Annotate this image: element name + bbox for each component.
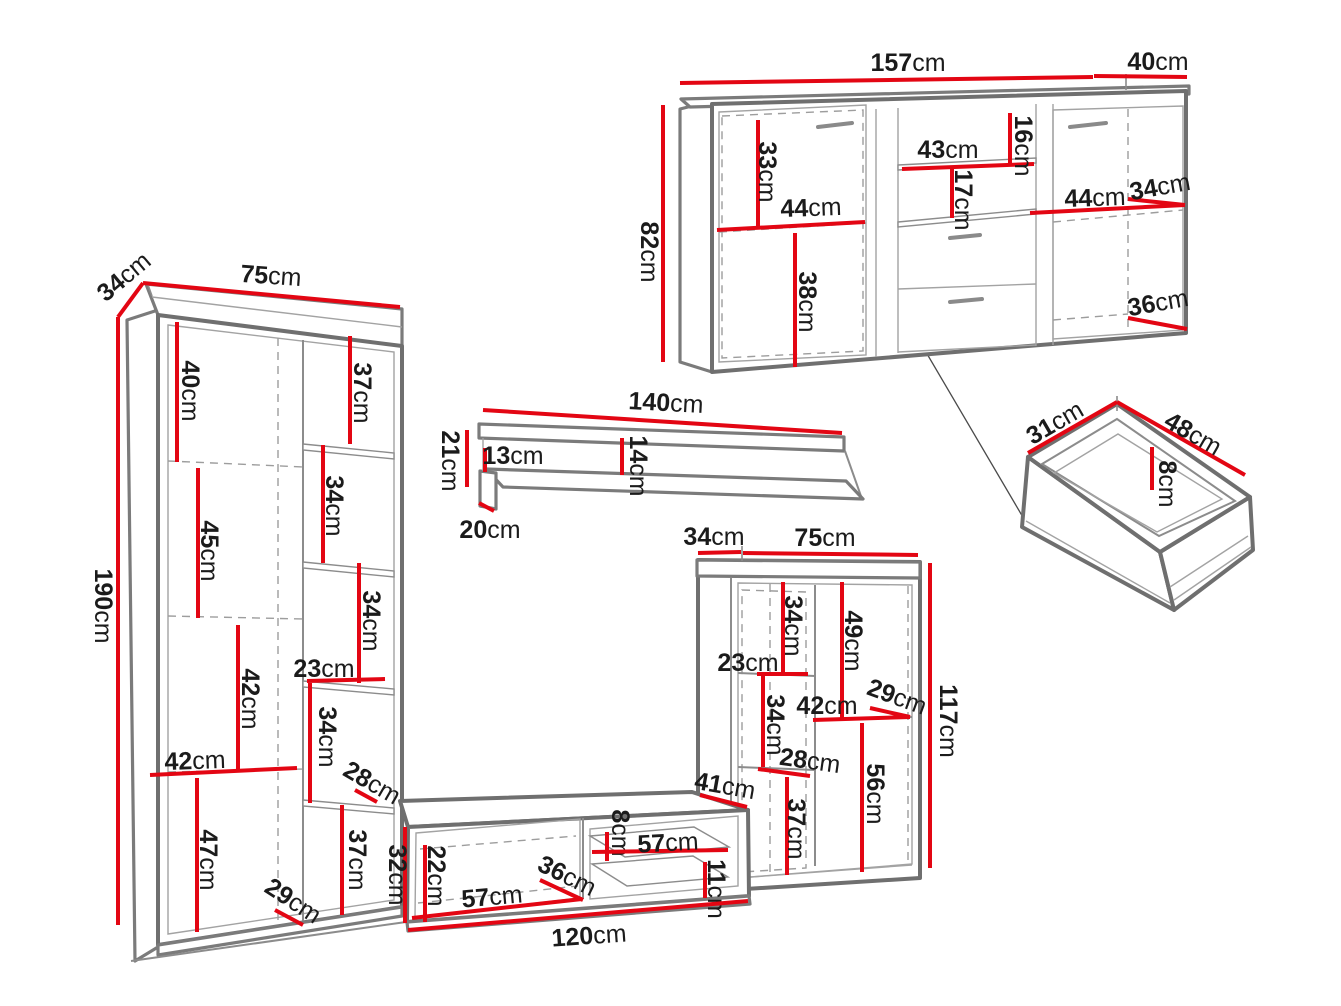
dim-label-cabinet-right-shelf1: 49cm xyxy=(839,610,867,671)
dim-label-shelf-front-height: 14cm xyxy=(624,435,652,496)
dim-label-sideboard-middle-width: 43cm xyxy=(917,136,978,164)
dim-label-tvstand-lower-gap: 11cm xyxy=(702,859,730,919)
dim-label-cabinet-depth: 34cm xyxy=(683,523,744,551)
dim-label-cabinet-right-shelf2: 56cm xyxy=(861,763,889,824)
dim-line-cabinet-width xyxy=(743,553,918,555)
diagram-page: 34cm75cm190cm40cm45cm42cm42cm47cm37cm34c… xyxy=(0,0,1341,1006)
dim-label-bookcase-width: 75cm xyxy=(240,260,303,292)
dim-label-bookcase-side-shelf5: 37cm xyxy=(343,829,371,890)
dim-label-sideboard-left-lower-height: 38cm xyxy=(793,271,821,332)
dim-label-sideboard-depth: 40cm xyxy=(1127,48,1188,76)
dim-label-sideboard-middle-top-height: 16cm xyxy=(1009,115,1037,176)
dim-label-bookcase-side-shelf1: 37cm xyxy=(348,362,376,423)
dim-label-sideboard-width: 157cm xyxy=(870,49,945,77)
dim-label-shelf-depth: 20cm xyxy=(459,516,520,544)
cabinet-top-panel xyxy=(697,560,920,578)
sideboard-front xyxy=(712,91,1186,372)
dim-label-shelf-back-height: 13cm xyxy=(482,442,543,470)
furniture-dimension-diagram: 34cm75cm190cm40cm45cm42cm42cm47cm37cm34c… xyxy=(0,0,1341,1006)
dim-label-tvstand-height: 32cm xyxy=(383,844,411,905)
dim-label-cabinet-width: 75cm xyxy=(794,524,855,552)
shelf-bottom-lip xyxy=(486,469,863,499)
dim-label-shelf-width: 140cm xyxy=(628,387,704,419)
dim-label-bookcase-side-width: 23cm xyxy=(293,655,354,683)
dim-label-cabinet-left-shelf3: 37cm xyxy=(782,798,810,859)
dim-label-cabinet-height: 117cm xyxy=(934,684,962,758)
dim-label-sideboard-height: 82cm xyxy=(635,221,663,282)
dim-label-bookcase-height: 190cm xyxy=(89,568,117,643)
dim-label-tvstand-inner-height: 22cm xyxy=(422,845,450,906)
dim-label-bookcase-bottom-height: 47cm xyxy=(194,829,222,890)
dim-label-sideboard-left-shelf-height: 33cm xyxy=(753,141,781,202)
dim-label-tvstand-width: 120cm xyxy=(551,919,628,952)
dim-label-tvstand-shelf-width: 57cm xyxy=(637,827,700,858)
dim-label-sideboard-right-width: 44cm xyxy=(1064,183,1126,213)
bookcase-left-side-panel xyxy=(127,310,158,961)
sideboard-to-drawer-leader-line xyxy=(923,347,1024,519)
dim-label-drawer-height: 8cm xyxy=(1153,460,1181,507)
dim-label-cabinet-left-width: 23cm xyxy=(717,649,778,677)
dim-label-shelf-height: 21cm xyxy=(436,430,464,491)
dim-label-cabinet-right-width: 42cm xyxy=(796,692,857,720)
piece-tv-stand xyxy=(400,792,750,931)
dim-label-bookcase-side-shelf3: 34cm xyxy=(357,590,385,651)
dim-label-cabinet-left-shelf1: 34cm xyxy=(779,595,807,656)
dim-label-tvstand-left-width: 57cm xyxy=(460,880,523,913)
dim-label-sideboard-middle-shelf-height: 17cm xyxy=(949,169,977,230)
dim-label-bookcase-top-shelf-height: 40cm xyxy=(176,360,204,421)
dim-label-sideboard-left-width: 44cm xyxy=(780,193,842,223)
dim-label-bookcase-side-shelf4: 34cm xyxy=(313,706,341,767)
dim-label-bookcase-shelf3-height: 42cm xyxy=(236,668,264,729)
dim-label-bookcase-side-shelf2: 34cm xyxy=(320,475,348,536)
dim-line-cabinet-depth xyxy=(698,552,741,553)
dim-line-sideboard-width xyxy=(680,77,1093,83)
dim-label-bookcase-inner-width: 42cm xyxy=(164,746,226,776)
dim-label-bookcase-shelf2-height: 45cm xyxy=(195,520,223,581)
dim-label-bookcase-depth: 34cm xyxy=(92,247,157,308)
dim-line-sideboard-depth xyxy=(1094,76,1187,77)
sideboard-left-side-panel xyxy=(680,101,712,372)
